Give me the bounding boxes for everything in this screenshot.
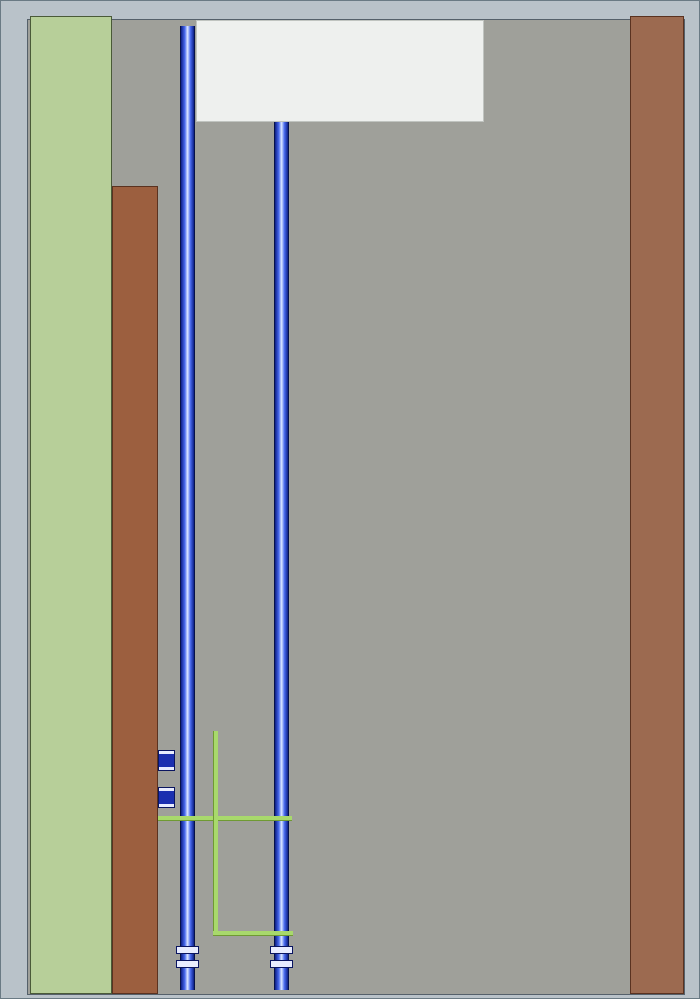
pipe-flange <box>270 946 293 954</box>
process-graphics-area <box>27 19 685 995</box>
discharge-main-pipe-1 <box>180 26 195 990</box>
main-menu-bar <box>30 16 112 994</box>
pipe-flange <box>176 946 199 954</box>
datetime-display <box>582 844 700 947</box>
hydraulic-line <box>213 931 293 936</box>
control-mode-panel <box>196 20 484 122</box>
footer-bar <box>630 16 684 994</box>
hydraulic-line <box>213 731 218 936</box>
page-title <box>112 186 158 994</box>
gate-valve-icon[interactable] <box>158 750 175 771</box>
discharge-main-pipe-2 <box>274 26 289 990</box>
pipe-flange <box>176 960 199 968</box>
gate-valve-icon[interactable] <box>158 787 175 808</box>
pipe-flange <box>270 960 293 968</box>
hmi-screen <box>0 0 700 999</box>
hydraulic-line <box>150 816 292 821</box>
